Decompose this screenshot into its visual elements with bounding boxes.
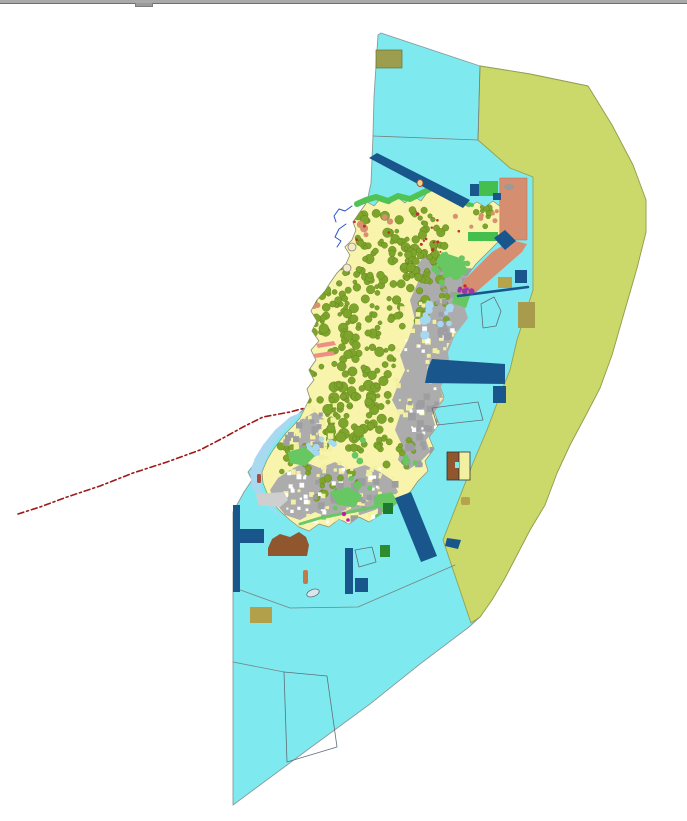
port-square-east [493,386,506,403]
brown-capsule-westcoast [257,474,261,483]
map-viewport[interactable] [0,0,687,821]
darkgreen-rect-s1 [383,503,393,514]
port-tbar-west-vertical [233,505,240,592]
brown-capsule-south [303,570,308,584]
landuse-map-canvas [0,0,687,821]
magenta-dot-harbor2 [346,518,350,522]
magenta-dot-harbor1 [342,512,346,516]
khaki-rect-southwest [250,607,272,623]
coast-knob-2 [343,264,351,272]
industrial-khaki-east [518,302,535,328]
gray-blob-in-salmon [504,184,514,190]
port-square-n1 [470,184,479,196]
zone-pair-notch [455,462,459,468]
marker-north-coast [417,180,423,187]
stream-northwest-2 [335,224,346,247]
window-divider-handle[interactable] [135,3,153,7]
port-square-ne-water [515,270,527,283]
industrial-khaki-ne-small [498,277,512,288]
map-document [0,0,687,821]
port-square-n2 [493,193,501,200]
port-square-south [355,578,368,592]
red-dot-pier [463,284,466,287]
window-edge-bar [0,0,687,4]
coast-knob-1 [348,243,356,251]
darkolive-rect-top [376,50,402,68]
darkgreen-rect-s2 [380,545,390,557]
stream-northwest-1 [334,206,352,222]
port-tbar-west-arm [240,529,264,543]
zone-pair-yellow-east [459,452,470,480]
port-bar-south [345,548,353,594]
khaki-dot-east [461,497,470,505]
green-zone-bar-ne [468,232,498,241]
